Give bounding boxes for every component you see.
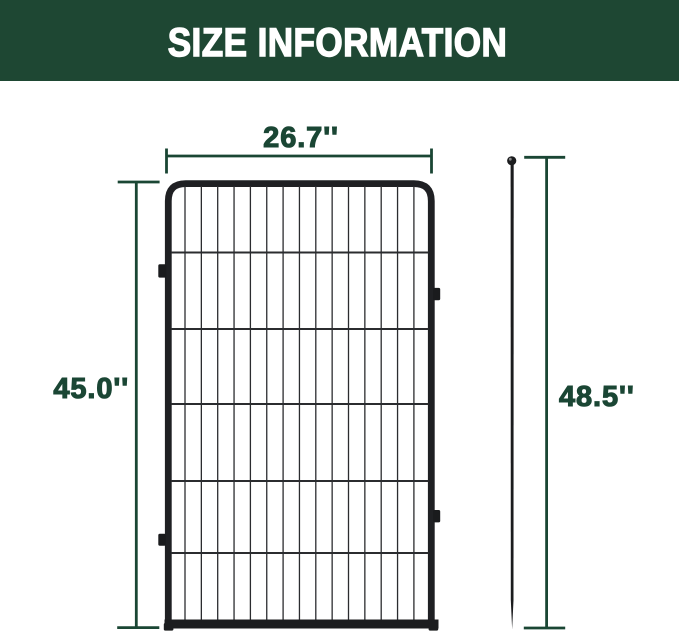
svg-text:48.5'': 48.5''	[559, 381, 635, 413]
svg-text:45.0'': 45.0''	[53, 373, 129, 405]
svg-text:26.7'': 26.7''	[263, 122, 339, 154]
